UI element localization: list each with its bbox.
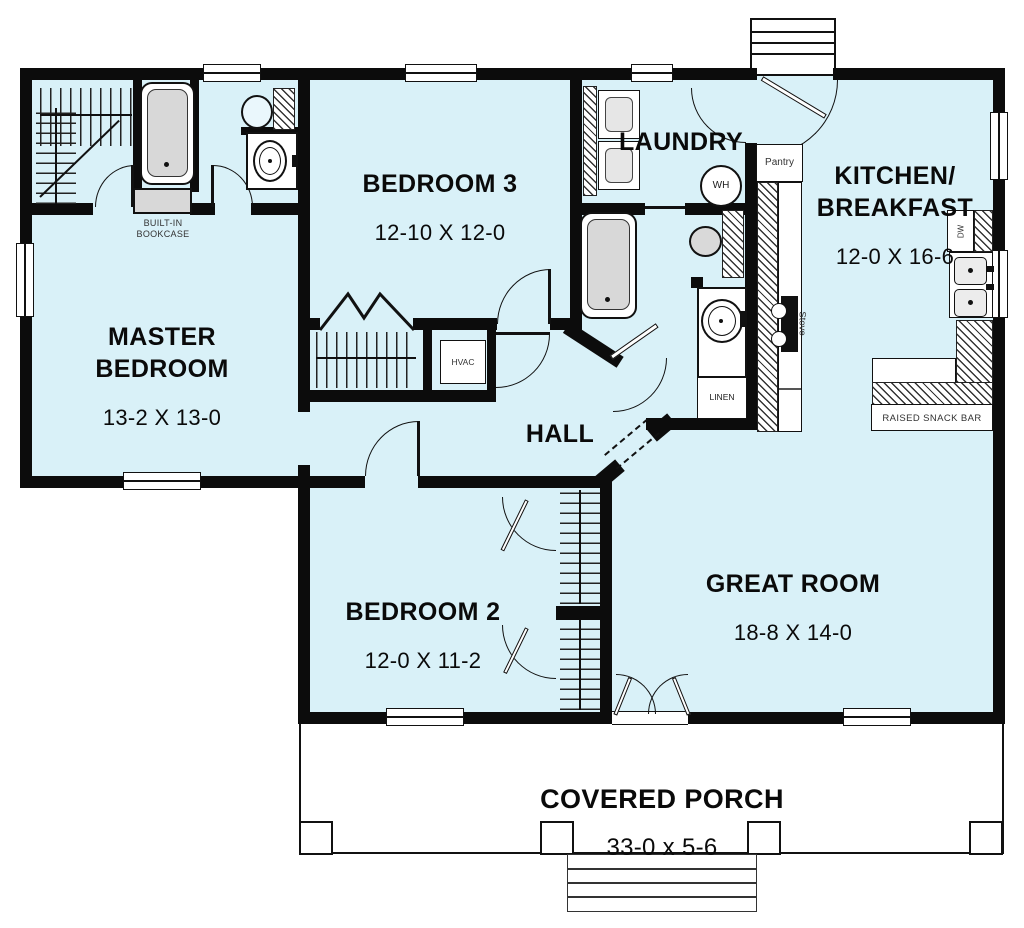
room-name: BEDROOM 2 — [323, 596, 523, 628]
wall-west-lower — [298, 476, 310, 724]
wall-bed2-greatroom-div — [600, 476, 612, 724]
kitchen-cabinet-line — [779, 388, 801, 390]
window-bedroom3 — [405, 64, 477, 82]
bath-tub-drain — [605, 297, 610, 302]
master-closet-rod-left — [55, 108, 57, 204]
room-dims: 12-0 X 16-6 — [793, 242, 997, 272]
room-label-bedroom3: BEDROOM 3 12-10 X 12-0 — [340, 150, 540, 266]
bath-opening-header — [645, 206, 685, 209]
wall-mbath-south-3 — [251, 203, 298, 215]
wall-hvac-east — [487, 330, 496, 390]
linen-label: LINEN — [697, 392, 747, 403]
porch-step-line — [567, 896, 757, 898]
snack-bar-hatch-horizontal — [872, 382, 993, 405]
stove-burner — [771, 331, 787, 347]
master-tub-drain — [164, 162, 169, 167]
room-name: MASTER BEDROOM — [62, 321, 262, 385]
hvac-door-leaf — [496, 332, 550, 335]
rear-step-line — [752, 53, 834, 55]
builtin-bookcase — [133, 188, 192, 214]
master-bath-door-leaf — [211, 165, 214, 207]
master-toilet-bowl — [241, 95, 273, 129]
bath-sink-faucet — [740, 311, 747, 327]
bed3-closet-hangers — [316, 332, 416, 388]
master-toilet-tank — [273, 88, 295, 130]
room-name: KITCHEN/ BREAKFAST — [793, 160, 997, 224]
room-name: GREAT ROOM — [693, 568, 893, 600]
porch-step-line — [567, 882, 757, 884]
room-label-porch: COVERED PORCH 33-0 x 5-6 — [512, 765, 812, 881]
snack-bar-label: RAISED SNACK BAR — [871, 413, 993, 424]
stove-label: Stove — [797, 300, 808, 348]
room-label-laundry: LAUNDRY — [586, 108, 776, 176]
window-master-south — [123, 472, 201, 490]
porch-post — [299, 821, 333, 855]
window-laundry — [631, 64, 673, 82]
bed2-closet2-rod — [579, 620, 581, 710]
room-name: LAUNDRY — [586, 126, 776, 158]
room-dims: 18-8 X 14-0 — [693, 618, 893, 648]
master-sink-drain — [268, 159, 272, 163]
room-dims: 13-2 X 13-0 — [62, 403, 262, 433]
snack-bar-hatch-vertical — [956, 320, 993, 383]
porch-post — [969, 821, 1003, 855]
bed2-closet1-rod — [579, 490, 581, 604]
rear-entry-steps — [750, 18, 836, 76]
bath-sink-drain — [719, 319, 723, 323]
wall-hall-south-1 — [310, 476, 365, 488]
wall-top-right — [833, 68, 1005, 80]
bath-toilet-bowl — [689, 226, 722, 257]
bedroom3-door-leaf — [548, 269, 551, 324]
room-label-greatroom: GREAT ROOM 18-8 X 14-0 — [693, 550, 893, 666]
room-label-hall: HALL — [505, 400, 615, 468]
rear-step-line — [752, 42, 834, 44]
window-bedroom2-south — [386, 708, 464, 726]
room-label-bedroom2: BEDROOM 2 12-0 X 11-2 — [323, 578, 523, 694]
wall-master-divider-stub — [298, 465, 310, 477]
room-dims: 12-10 X 12-0 — [340, 218, 540, 248]
room-label-kitchen: KITCHEN/ BREAKFAST 12-0 X 16-6 — [793, 142, 997, 290]
room-name: BEDROOM 3 — [340, 168, 540, 200]
wall-master-divider — [298, 80, 310, 412]
stove-burner — [771, 303, 787, 319]
room-label-master-bedroom: MASTER BEDROOM 13-2 X 13-0 — [62, 303, 262, 451]
room-dims: 12-0 X 11-2 — [323, 646, 523, 676]
wall-mbath-south-1 — [32, 203, 93, 215]
bedroom2-door-leaf — [417, 421, 420, 476]
window-greatroom-south — [843, 708, 911, 726]
wall-bed2-closet-div — [556, 606, 602, 620]
floor-plan: WH LINEN Pantry Stove DW RAISED SNACK BA… — [0, 0, 1024, 928]
bed3-closet-rod — [316, 357, 416, 359]
window-master-left — [16, 243, 34, 317]
hvac-label: HVAC — [440, 357, 486, 368]
wall-bed3-south-2 — [413, 318, 497, 330]
room-name: HALL — [505, 418, 615, 450]
snack-bar-counter-step — [872, 358, 956, 383]
kitchen-sink-drain — [968, 300, 973, 305]
master-sink-faucet — [292, 155, 298, 167]
bookcase-label: BUILT-IN BOOKCASE — [121, 218, 205, 240]
wall-hall-south-2 — [418, 476, 602, 488]
room-name: COVERED PORCH — [512, 783, 812, 815]
wall-closet-bottom — [306, 390, 496, 402]
water-heater-label: WH — [700, 180, 742, 191]
bath-plumbing-wall-hatch — [722, 210, 744, 278]
window-master-bath — [203, 64, 261, 82]
wall-closet-hvac-div — [423, 330, 432, 390]
rear-step-line — [752, 31, 834, 33]
room-dims: 33-0 x 5-6 — [512, 833, 812, 863]
bifold-doors-icon — [316, 288, 420, 332]
